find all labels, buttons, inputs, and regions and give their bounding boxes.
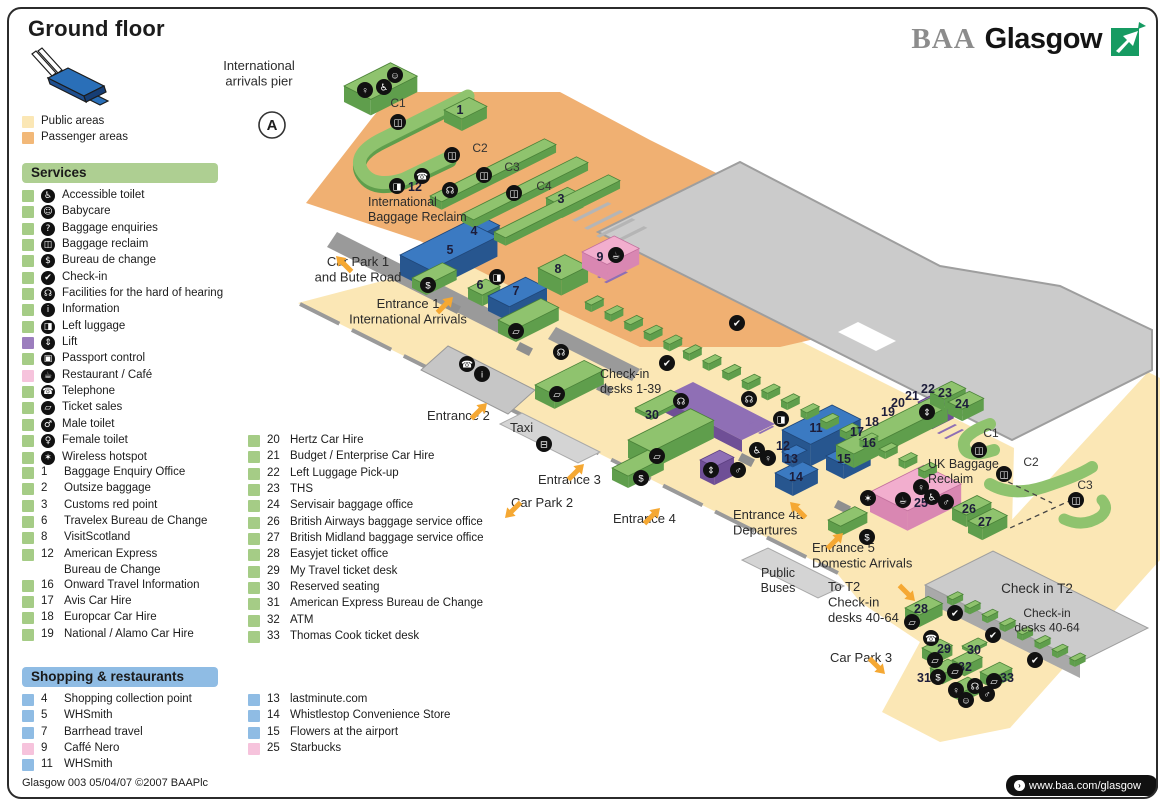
brand-baa: BAA xyxy=(911,23,975,56)
map-marker-7: 7 xyxy=(513,284,520,298)
legend-number: 13 xyxy=(267,693,290,705)
service-item-label: Lift xyxy=(62,336,77,348)
footer-version-text: Glasgow 003 05/04/07 ©2007 BAAPlc xyxy=(22,777,208,789)
ticket-sales-icon-glyph: ▱ xyxy=(908,617,916,628)
terminal-icon xyxy=(22,44,132,106)
legend-label-line2: Bureau de Change xyxy=(64,564,161,579)
pier-a-letter: A xyxy=(267,117,278,134)
legend-number: 33 xyxy=(267,630,290,642)
information-icon: i xyxy=(41,303,55,317)
service-chip xyxy=(22,370,34,382)
legend-number: 17 xyxy=(41,595,64,607)
babycare-icon: ☺ xyxy=(41,205,55,219)
area-legend-label: Public areas xyxy=(41,115,104,127)
service-item-label: Information xyxy=(62,303,120,315)
legend-label: Starbucks xyxy=(290,742,341,754)
carousel-label-C3: C3 xyxy=(504,160,520,174)
accessible-toilet-icon-glyph: ♿ xyxy=(380,82,389,93)
map-marker-11: 11 xyxy=(809,421,822,435)
service-item-baggage-enquiries: ?Baggage enquiries xyxy=(22,222,252,238)
map-marker-17: 17 xyxy=(850,425,864,439)
legend-label: Barrhead travel xyxy=(64,726,143,738)
map-marker-16: 16 xyxy=(862,436,876,450)
shopping-header: Shopping & restaurants xyxy=(22,667,218,687)
legend-number-chip xyxy=(22,580,34,592)
service-chip xyxy=(22,337,34,349)
service-item-12: 12American Express xyxy=(22,548,252,564)
service-item-left-luggage: ◨Left luggage xyxy=(22,320,252,336)
left-luggage-icon-glyph: ◨ xyxy=(777,414,786,425)
area-legend: Public areasPassenger areas xyxy=(22,115,242,148)
legend-number: 25 xyxy=(267,742,290,754)
area-legend-item: Passenger areas xyxy=(22,131,242,147)
restaurant-cafe-icon-glyph: ☕ xyxy=(612,250,621,261)
service-chip xyxy=(22,353,34,365)
check-in-icon-glyph: ✔ xyxy=(989,630,997,641)
legend-number: 18 xyxy=(41,611,64,623)
male-toilet-icon-glyph: ♂ xyxy=(942,497,949,508)
service-item-hard-of-hearing: ☊Facilities for the hard of hearing xyxy=(22,287,252,303)
service-item-babycare: ☺Babycare xyxy=(22,205,252,221)
service-item-28: 28Easyjet ticket office xyxy=(248,548,518,564)
baggage-reclaim-icon: ◫ xyxy=(41,238,55,252)
legend-number-chip xyxy=(22,596,34,608)
female-toilet-icon-glyph: ♀ xyxy=(952,685,959,696)
map-marker-23: 23 xyxy=(938,386,952,400)
ticket-sales-icon: ▱ xyxy=(41,401,55,415)
map-marker-6: 6 xyxy=(477,278,484,292)
service-item-label: Left luggage xyxy=(62,320,125,332)
baggage-reclaim-icon-glyph: ◫ xyxy=(448,150,457,161)
service-item-22: 22Left Luggage Pick-up xyxy=(248,467,518,483)
legend-label: lastminute.com xyxy=(290,693,367,705)
service-item-label: Baggage enquiries xyxy=(62,222,158,234)
service-chip xyxy=(22,435,34,447)
legend-number-chip xyxy=(22,759,34,771)
legend-label: Whistlestop Convenience Store xyxy=(290,709,450,721)
baggage-reclaim-icon-glyph: ◫ xyxy=(480,170,489,181)
legend-label: Onward Travel Information xyxy=(64,579,200,591)
bus-icon-glyph: ⊟ xyxy=(540,439,548,450)
legend-label: My Travel ticket desk xyxy=(290,565,397,577)
legend-number-chip xyxy=(248,743,260,755)
legend-label: American Express xyxy=(64,548,157,560)
service-chip xyxy=(22,206,34,218)
legend-number-chip xyxy=(248,517,260,529)
ticket-sales-icon-glyph: ▱ xyxy=(512,326,520,337)
legend-number-chip xyxy=(248,615,260,627)
baggage-enquiries-icon: ? xyxy=(41,222,55,236)
airport-map-page: Internationalarrivals pierInternationalB… xyxy=(0,0,1165,806)
service-item-29: 29My Travel ticket desk xyxy=(248,565,518,581)
service-item-label: Facilities for the hard of hearing xyxy=(62,287,223,299)
legend-number-chip xyxy=(22,483,34,495)
legend-number: 3 xyxy=(41,499,64,511)
carousel-label-C3: C3 xyxy=(1077,478,1093,492)
carousel-label-C1: C1 xyxy=(983,426,999,440)
female-toilet-icon: ♀ xyxy=(41,434,55,448)
legend-label: Budget / Enterprise Car Hire xyxy=(290,450,434,462)
legend-label: THS xyxy=(290,483,313,495)
check-in-icon-glyph: ✔ xyxy=(733,318,741,329)
shop-item-7: 7Barrhead travel xyxy=(22,726,252,742)
legend-number-chip xyxy=(22,500,34,512)
lift-icon-glyph: ⇕ xyxy=(923,407,931,418)
legend-label: Shopping collection point xyxy=(64,693,192,705)
legend-number: 22 xyxy=(267,467,290,479)
map-marker-30: 30 xyxy=(967,643,981,657)
male-toilet-icon: ♂ xyxy=(41,418,55,432)
hard-of-hearing-icon: ☊ xyxy=(41,287,55,301)
map-marker-20: 20 xyxy=(891,396,905,410)
service-chip xyxy=(22,321,34,333)
check-in-icon: ✔ xyxy=(41,271,55,285)
shop-item-25: 25Starbucks xyxy=(248,742,508,758)
legend-number-chip xyxy=(248,468,260,480)
female-toilet-icon-glyph: ♀ xyxy=(361,85,368,96)
left-luggage-icon-glyph: ◨ xyxy=(493,272,502,283)
services-numbered-list: 1Baggage Enquiry Office2Outsize baggage3… xyxy=(22,466,252,644)
legend-number: 7 xyxy=(41,726,64,738)
service-item-passport-control: ▣Passport control xyxy=(22,352,252,368)
carousel-label-C2: C2 xyxy=(472,141,488,155)
female-toilet-icon-glyph: ♀ xyxy=(917,482,924,493)
babycare-icon-glyph: ☺ xyxy=(961,695,971,706)
service-item-label: Passport control xyxy=(62,352,145,364)
ticket-sales-icon-glyph: ▱ xyxy=(990,676,998,687)
legend-number-chip xyxy=(22,516,34,528)
legend-number: 30 xyxy=(267,581,290,593)
legend-number: 8 xyxy=(41,531,64,543)
baa-logo-icon xyxy=(1111,22,1147,56)
restaurant-cafe-icon-glyph: ☕ xyxy=(899,495,908,506)
service-item-16: 16Onward Travel Information xyxy=(22,579,252,595)
map-label-international-arrivals-pier: Internationalarrivals pier xyxy=(223,58,295,89)
service-item-20: 20Hertz Car Hire xyxy=(248,434,518,450)
legend-label: American Express Bureau de Change xyxy=(290,597,483,609)
legend-number-chip xyxy=(248,631,260,643)
passport-control-icon: ▣ xyxy=(41,352,55,366)
map-marker-9: 9 xyxy=(597,250,604,264)
legend-number: 4 xyxy=(41,693,64,705)
legend-number-chip xyxy=(22,467,34,479)
baggage-reclaim-icon-glyph: ◫ xyxy=(510,188,519,199)
lift-icon-glyph: ⇕ xyxy=(707,465,715,476)
shop-item-5: 5WHSmith xyxy=(22,709,252,725)
ticket-sales-icon-glyph: ▱ xyxy=(931,655,939,666)
service-chip xyxy=(22,304,34,316)
legend-label: Europcar Car Hire xyxy=(64,611,157,623)
accessible-toilet-icon: ♿ xyxy=(41,189,55,203)
legend-number: 24 xyxy=(267,499,290,511)
legend-number-chip xyxy=(248,727,260,739)
hard-of-hearing-icon-glyph: ☊ xyxy=(557,347,565,358)
ticket-sales-icon-glyph: ▱ xyxy=(951,666,959,677)
legend-number: 27 xyxy=(267,532,290,544)
service-chip xyxy=(22,386,34,398)
service-item-label: Bureau de change xyxy=(62,254,156,266)
legend-number-chip xyxy=(248,435,260,447)
legend-number-chip xyxy=(248,582,260,594)
service-item-label: Babycare xyxy=(62,205,111,217)
service-chip xyxy=(22,419,34,431)
map-marker-28: 28 xyxy=(914,602,928,616)
check-in-icon-glyph: ✔ xyxy=(1031,655,1039,666)
shop-item-4: 4Shopping collection point xyxy=(22,693,252,709)
service-item-ticket-sales: ▱Ticket sales xyxy=(22,401,252,417)
legend-label: Avis Car Hire xyxy=(64,595,132,607)
legend-number: 6 xyxy=(41,515,64,527)
telephone-icon-glyph: ☎ xyxy=(925,633,937,644)
map-label-t2-check-in-desks: Check-indesks 40-64 xyxy=(1014,606,1080,635)
page-title: Ground floor xyxy=(28,16,165,42)
map-label-public-buses: PublicBuses xyxy=(761,566,796,595)
shop-item-13: 13lastminute.com xyxy=(248,693,508,709)
wireless-hotspot-icon-glyph: ✶ xyxy=(864,493,872,504)
service-chip xyxy=(22,255,34,267)
baggage-reclaim-icon-glyph: ◫ xyxy=(394,117,403,128)
legend-number-chip xyxy=(22,710,34,722)
service-item-telephone: ☎Telephone xyxy=(22,385,252,401)
service-item-label: Wireless hotspot xyxy=(62,451,147,463)
service-item-bureau-de-change: $Bureau de change xyxy=(22,254,252,270)
legend-label: Easyjet ticket office xyxy=(290,548,388,560)
left-luggage-icon-glyph: ◨ xyxy=(393,181,402,192)
wireless-hotspot-icon: ✶ xyxy=(41,451,55,465)
map-marker-12: 12 xyxy=(776,439,790,453)
legend-number-chip xyxy=(22,743,34,755)
legend-label: Caffé Nero xyxy=(64,742,119,754)
male-toilet-icon-glyph: ♂ xyxy=(983,689,990,700)
map-marker-18: 18 xyxy=(865,415,879,429)
service-item-label: Check-in xyxy=(62,271,107,283)
legend-label: Left Luggage Pick-up xyxy=(290,467,399,479)
telephone-icon-glyph: ☎ xyxy=(416,171,428,182)
service-item-check-in: ✔Check-in xyxy=(22,271,252,287)
legend-label: Outsize baggage xyxy=(64,482,151,494)
left-luggage-icon: ◨ xyxy=(41,320,55,334)
legend-label: Hertz Car Hire xyxy=(290,434,363,446)
service-item-label: Ticket sales xyxy=(62,401,122,413)
services-numbered-list-col2: 20Hertz Car Hire21Budget / Enterprise Ca… xyxy=(248,434,518,646)
accessible-toilet-icon-glyph: ♿ xyxy=(928,492,937,503)
legend-number-chip xyxy=(22,549,34,561)
legend-label: British Airways baggage service office xyxy=(290,516,483,528)
globe-icon: › xyxy=(1014,780,1025,791)
service-item-baggage-reclaim: ◫Baggage reclaim xyxy=(22,238,252,254)
lift-icon: ⇕ xyxy=(41,336,55,350)
legend-number: 19 xyxy=(41,628,64,640)
telephone-icon-glyph: ☎ xyxy=(461,359,473,370)
service-chip xyxy=(22,402,34,414)
map-label-entrance-4a-departures: Entrance 4aDepartures xyxy=(733,507,804,538)
hard-of-hearing-icon-glyph: ☊ xyxy=(446,185,454,196)
legend-number: 21 xyxy=(267,450,290,462)
legend-number-chip xyxy=(248,451,260,463)
service-item-wireless-hotspot: ✶Wireless hotspot xyxy=(22,451,252,467)
service-item-32: 32ATM xyxy=(248,614,518,630)
carousel-label-C2: C2 xyxy=(1023,455,1039,469)
service-item-26: 26British Airways baggage service office xyxy=(248,516,518,532)
legend-label: Travelex Bureau de Change xyxy=(64,515,207,527)
baggage-reclaim-icon-glyph: ◫ xyxy=(1000,469,1009,480)
shop-item-15: 15Flowers at the airport xyxy=(248,726,508,742)
hard-of-hearing-icon-glyph: ☊ xyxy=(745,394,753,405)
area-color-chip xyxy=(22,116,34,128)
baggage-reclaim-icon-glyph: ◫ xyxy=(975,445,984,456)
shopping-list-col1: 4Shopping collection point5WHSmith7Barrh… xyxy=(22,693,252,775)
service-item-information: iInformation xyxy=(22,303,252,319)
legend-label: WHSmith xyxy=(64,709,113,721)
legend-number: 16 xyxy=(41,579,64,591)
check-in-icon-glyph: ✔ xyxy=(951,608,959,619)
map-marker-3: 3 xyxy=(558,192,565,206)
service-item-2: 2Outsize baggage xyxy=(22,482,252,498)
service-item-31: 31American Express Bureau de Change xyxy=(248,597,518,613)
legend-label: ATM xyxy=(290,614,313,626)
services-icon-list: ♿Accessible toilet☺Babycare?Baggage enqu… xyxy=(22,189,252,467)
area-color-chip xyxy=(22,132,34,144)
legend-number: 15 xyxy=(267,726,290,738)
service-item-accessible-toilet: ♿Accessible toilet xyxy=(22,189,252,205)
ticket-sales-icon-glyph: ▱ xyxy=(553,389,561,400)
accessible-toilet-icon-glyph: ♿ xyxy=(753,445,762,456)
map-marker-14: 14 xyxy=(789,470,803,484)
map-marker-5: 5 xyxy=(447,243,454,257)
map-marker-21: 21 xyxy=(905,389,919,403)
legend-label: Flowers at the airport xyxy=(290,726,398,738)
map-marker-33: 33 xyxy=(1000,671,1014,685)
legend-label: British Midland baggage service office xyxy=(290,532,483,544)
legend-label: Reserved seating xyxy=(290,581,380,593)
map-marker-27: 27 xyxy=(978,515,992,529)
service-item-label: Male toilet xyxy=(62,418,114,430)
map-label-car-park-1: Car Park 1and Bute Road xyxy=(315,254,402,285)
female-toilet-icon-glyph: ♀ xyxy=(764,453,771,464)
baggage-reclaim-icon-glyph: ◫ xyxy=(1072,495,1081,506)
legend-number: 26 xyxy=(267,516,290,528)
map-marker-26: 26 xyxy=(962,502,976,516)
information-icon-glyph: i xyxy=(481,369,483,380)
service-item-24: 24Servisair baggage office xyxy=(248,499,518,515)
legend-label: WHSmith xyxy=(64,758,113,770)
service-item-label: Telephone xyxy=(62,385,115,397)
service-item-label: Restaurant / Café xyxy=(62,369,152,381)
legend-number: 14 xyxy=(267,709,290,721)
legend-number-chip xyxy=(248,549,260,561)
map-label-check-in-t2: Check in T2 xyxy=(1001,581,1073,596)
legend-number: 23 xyxy=(267,483,290,495)
map-marker-4: 4 xyxy=(471,224,478,238)
service-chip xyxy=(22,239,34,251)
service-item-label: Female toilet xyxy=(62,434,128,446)
male-toilet-icon-glyph: ♂ xyxy=(734,465,741,476)
map-marker-30: 30 xyxy=(645,408,659,422)
map-marker-31: 31 xyxy=(917,671,931,685)
legend-number-chip xyxy=(22,629,34,641)
legend-number-chip xyxy=(22,532,34,544)
bureau-de-change-icon: $ xyxy=(41,254,55,268)
services-header: Services xyxy=(22,163,218,183)
legend-number: 5 xyxy=(41,709,64,721)
legend-number: 20 xyxy=(267,434,290,446)
legend-number: 12 xyxy=(41,548,64,560)
service-item-8: 8VisitScotland xyxy=(22,531,252,547)
legend-number: 11 xyxy=(41,758,64,770)
check-in-icon-glyph: ✔ xyxy=(663,358,671,369)
service-item-6: 6Travelex Bureau de Change xyxy=(22,515,252,531)
legend-number: 9 xyxy=(41,742,64,754)
legend-label: Customs red point xyxy=(64,499,157,511)
legend-number-chip xyxy=(248,598,260,610)
map-label-entrance-4: Entrance 4 xyxy=(613,511,676,526)
shop-item-11: 11WHSmith xyxy=(22,758,252,774)
map-label-taxi: Taxi xyxy=(510,420,533,435)
legend-number-chip xyxy=(248,500,260,512)
service-item-lift: ⇕Lift xyxy=(22,336,252,352)
legend-label: Servisair baggage office xyxy=(290,499,413,511)
service-item-1: 1Baggage Enquiry Office xyxy=(22,466,252,482)
legend-label: Baggage Enquiry Office xyxy=(64,466,185,478)
map-label-car-park-3: Car Park 3 xyxy=(830,650,892,665)
area-legend-item: Public areas xyxy=(22,115,242,131)
map-marker-22: 22 xyxy=(921,382,935,396)
service-item-33: 33Thomas Cook ticket desk xyxy=(248,630,518,646)
service-item-21: 21Budget / Enterprise Car Hire xyxy=(248,450,518,466)
map-marker-15: 15 xyxy=(837,452,851,466)
legend-label: Thomas Cook ticket desk xyxy=(290,630,419,642)
legend-label: VisitScotland xyxy=(64,531,130,543)
legend-label: National / Alamo Car Hire xyxy=(64,628,194,640)
bureau-de-change-icon-glyph: $ xyxy=(935,672,941,683)
ticket-sales-icon-glyph: ▱ xyxy=(653,451,661,462)
service-chip xyxy=(22,288,34,300)
service-item-male-toilet: ♂Male toilet xyxy=(22,418,252,434)
service-item-12-line2: Bureau de Change xyxy=(22,564,252,579)
legend-number-chip xyxy=(248,566,260,578)
legend-number: 1 xyxy=(41,466,64,478)
carousel-label-C4: C4 xyxy=(536,179,552,193)
telephone-icon: ☎ xyxy=(41,385,55,399)
brand-logo: BAA Glasgow xyxy=(911,22,1147,56)
bureau-de-change-icon-glyph: $ xyxy=(638,473,644,484)
service-item-23: 23THS xyxy=(248,483,518,499)
restaurant-cafe-icon: ☕ xyxy=(41,369,55,383)
carousel-label-C1: C1 xyxy=(390,96,406,110)
service-item-restaurant-cafe: ☕Restaurant / Café xyxy=(22,369,252,385)
service-chip xyxy=(22,452,34,464)
brand-glasgow: Glasgow xyxy=(985,23,1102,56)
service-chip xyxy=(22,272,34,284)
legend-number-chip xyxy=(248,710,260,722)
legend-number: 29 xyxy=(267,565,290,577)
hard-of-hearing-icon-glyph: ☊ xyxy=(677,396,685,407)
babycare-icon-glyph: ☺ xyxy=(390,70,400,81)
shop-item-9: 9Caffé Nero xyxy=(22,742,252,758)
area-legend-label: Passenger areas xyxy=(41,131,128,143)
map-marker-1: 1 xyxy=(457,103,464,117)
legend-number-chip xyxy=(22,694,34,706)
legend-number: 28 xyxy=(267,548,290,560)
legend-number: 32 xyxy=(267,614,290,626)
shop-item-14: 14Whistlestop Convenience Store xyxy=(248,709,508,725)
legend-number-chip xyxy=(248,484,260,496)
map-marker-24: 24 xyxy=(955,397,969,411)
service-item-3: 3Customs red point xyxy=(22,499,252,515)
map-marker-8: 8 xyxy=(555,262,562,276)
legend-number-chip xyxy=(248,533,260,545)
website-badge[interactable]: › www.baa.com/glasgow xyxy=(1006,775,1158,796)
